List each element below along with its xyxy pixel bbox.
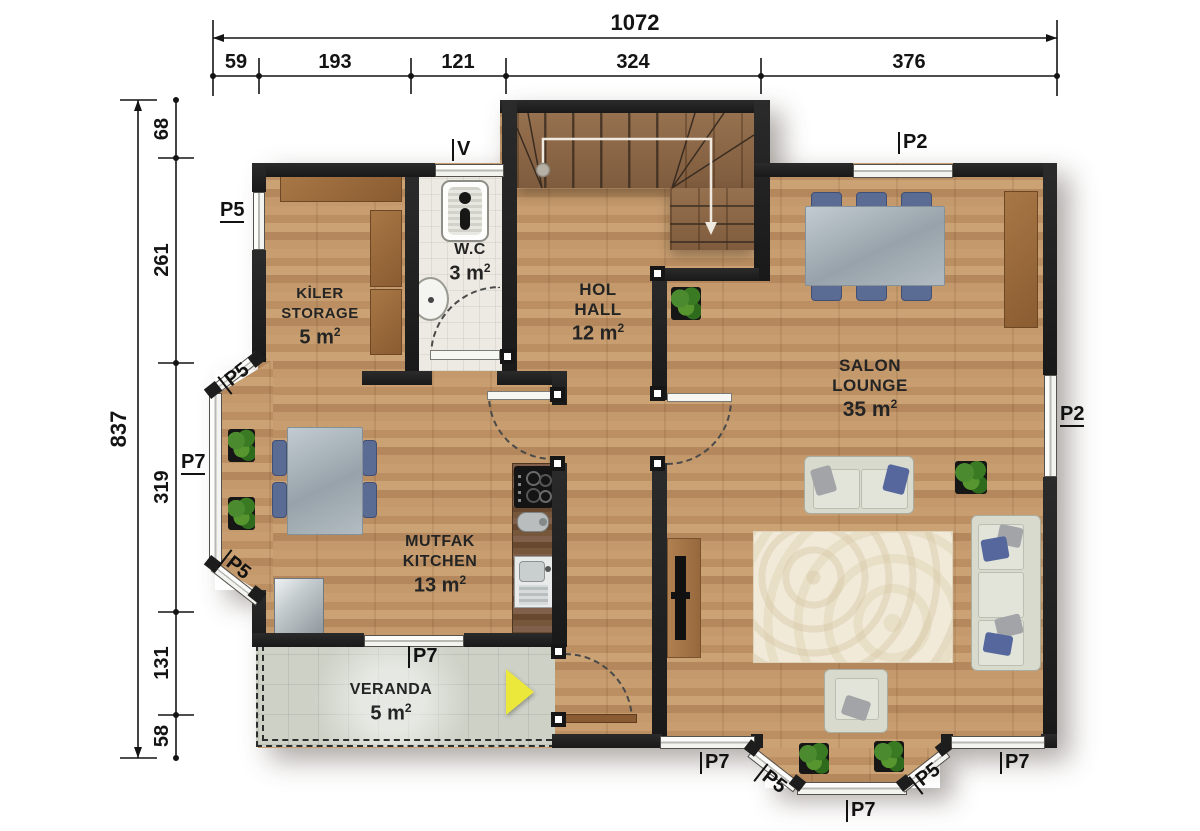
dim-left-segment: 319 [151,470,173,503]
dim-left-segment: 68 [151,118,173,140]
dim-top-segment: 193 [318,51,351,73]
dim-left-segment: 131 [151,646,173,679]
dim-top-segment: 59 [225,51,247,73]
dim-left-total: 837 [106,411,131,448]
dim-left-segment: 261 [151,243,173,276]
dim-top-segment: 324 [616,51,650,73]
dim-top-segment: 376 [892,51,925,73]
dim-top-segment: 121 [441,51,474,73]
floor-plan: P5 P5 P7 P5 P7 V P2 P2 P7 P5 P7 P5 P7 Kİ… [0,0,1200,831]
dim-left-segment: 58 [151,725,173,747]
dim-top-total: 1072 [611,10,660,35]
dimension-lines: 1072 59 193 121 324 376 837 68 261 319 1… [0,0,1200,831]
